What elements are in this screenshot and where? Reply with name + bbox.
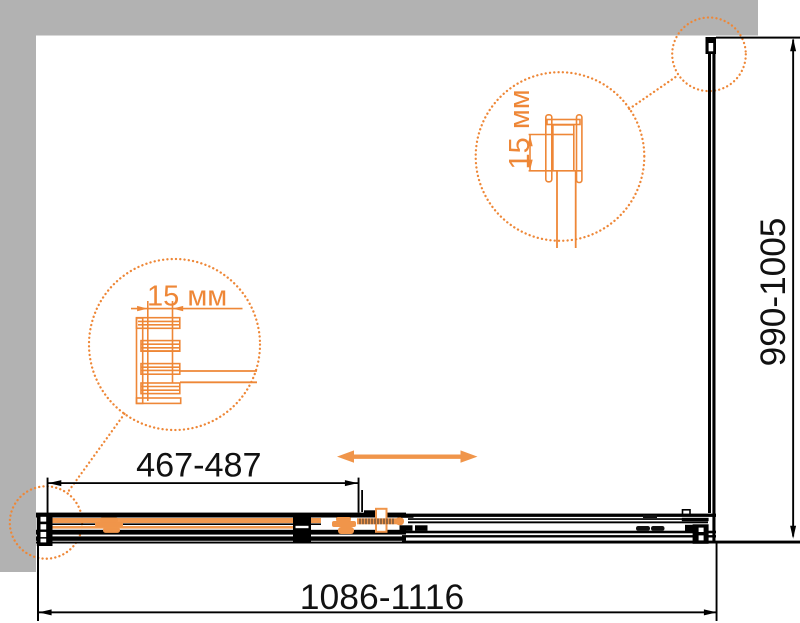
svg-text:990-1005: 990-1005 [754,218,793,367]
svg-text:15 мм: 15 мм [504,89,536,169]
svg-text:15 мм: 15 мм [147,281,227,313]
svg-text:1086-1116: 1086-1116 [300,577,465,617]
svg-text:467-487: 467-487 [136,447,261,485]
